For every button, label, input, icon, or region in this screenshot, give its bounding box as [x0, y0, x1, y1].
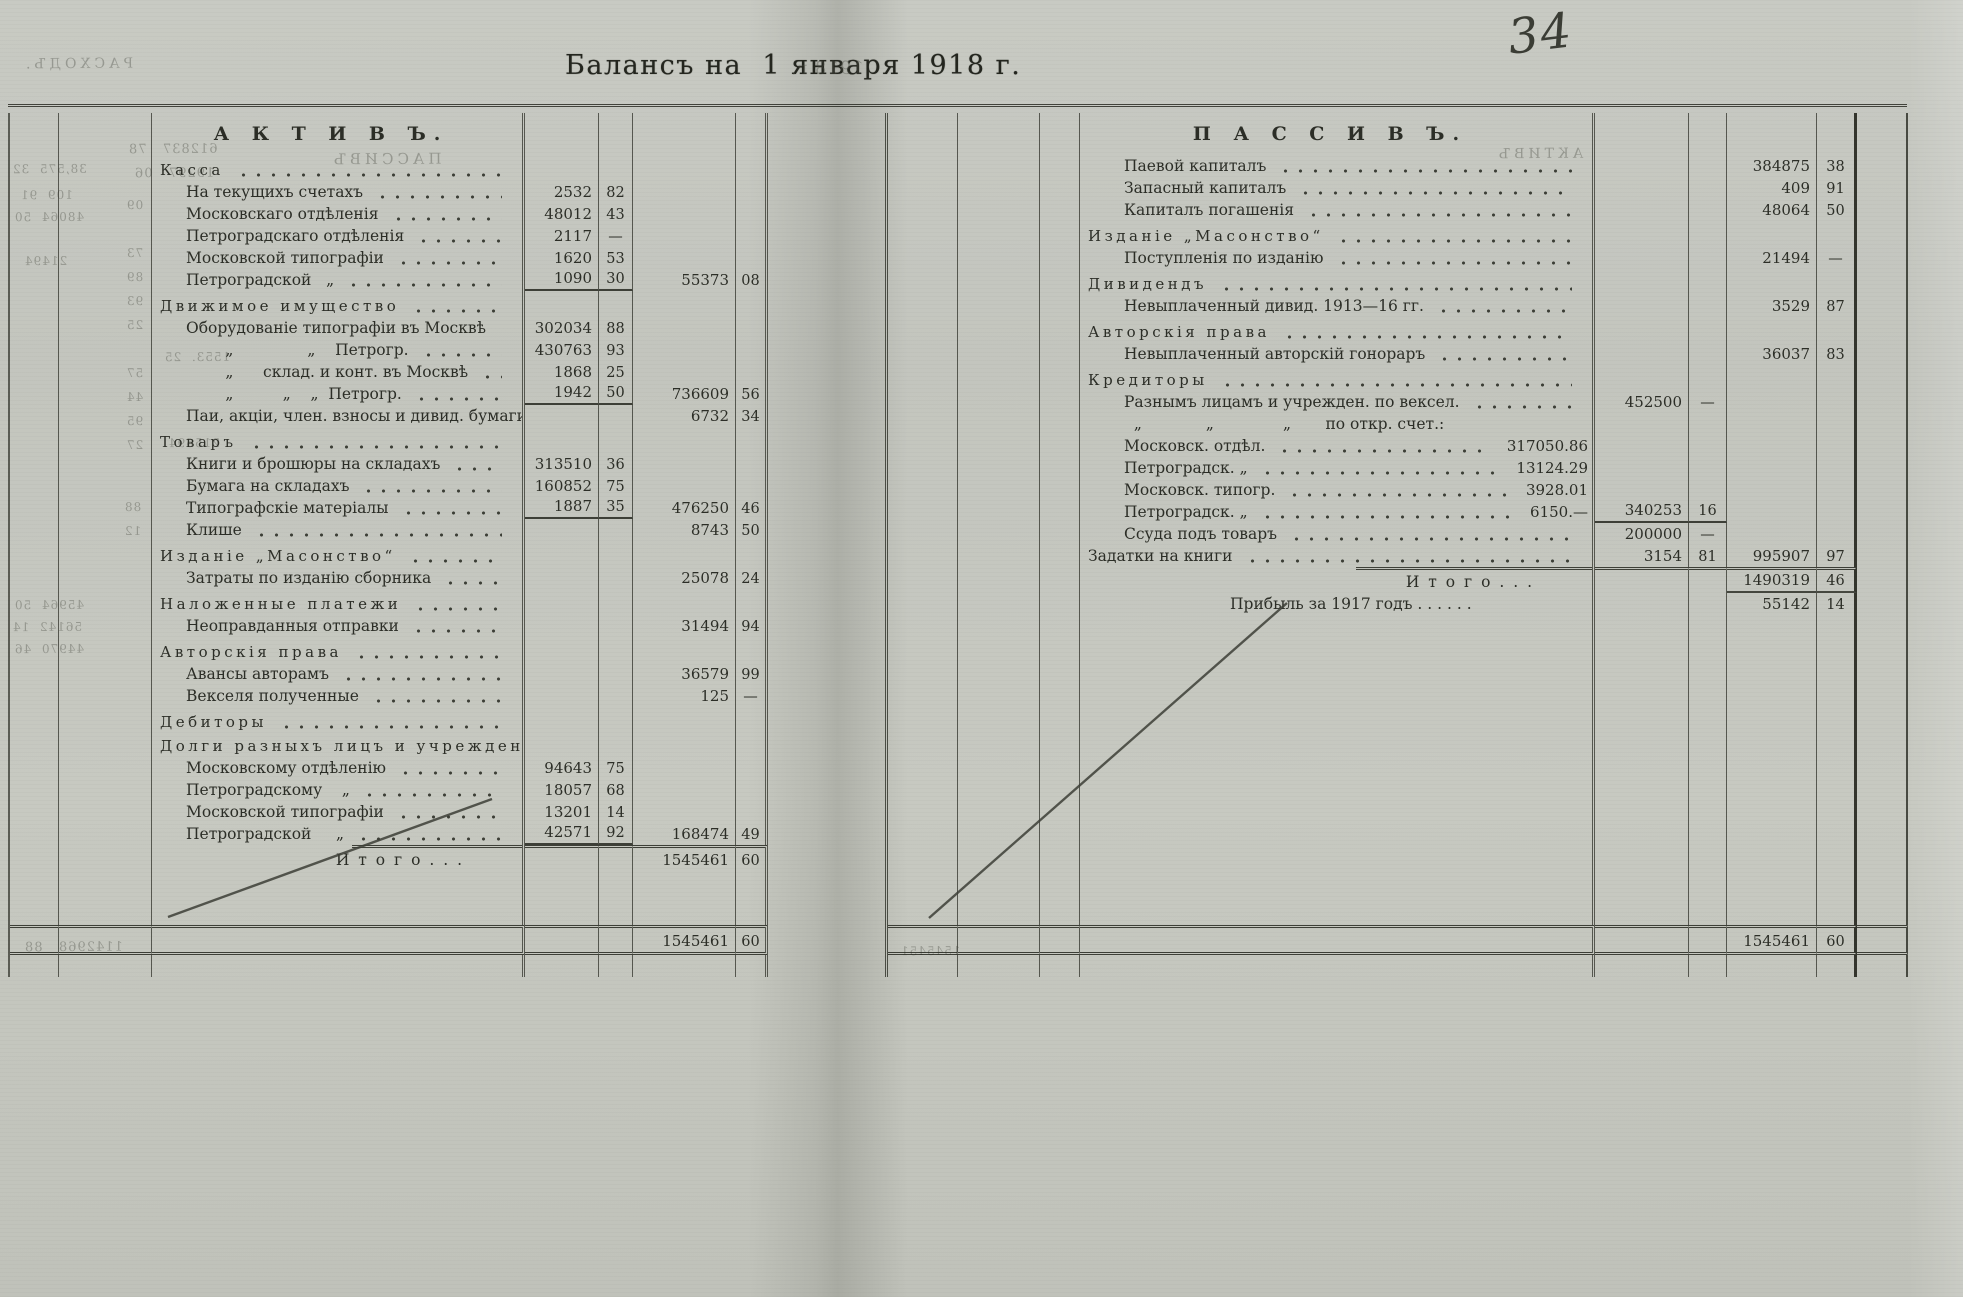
amount-col1: [1595, 269, 1689, 295]
margin-column: [10, 955, 59, 977]
amount-col2: [633, 453, 736, 475]
amount-col1: 2117: [525, 225, 599, 247]
margin-column: [10, 801, 59, 823]
ledger-row: Долги разныхъ лицъ и учрежденій:: [10, 733, 768, 757]
tail-column: [1857, 199, 1908, 221]
margin-column: [10, 203, 59, 225]
kopecks-col1: [1689, 155, 1727, 177]
amount-col2: [1727, 479, 1817, 501]
inline-amount: 317050.86: [1499, 437, 1592, 457]
kopecks-col2: [736, 589, 768, 615]
amount-col1: 2532: [525, 181, 599, 203]
kopecks-col1: 35: [599, 497, 633, 519]
dot-leader: [411, 307, 502, 313]
margin-column: [888, 365, 958, 391]
kopecks-col1: [599, 291, 633, 317]
tail-column: [1857, 365, 1908, 391]
amount-col1: [525, 519, 599, 541]
kopecks-col1: [599, 925, 633, 955]
row-label: Ссуда подъ товаръ: [1124, 525, 1277, 545]
kopecks-col1: [1689, 413, 1727, 435]
amount-col1: [525, 663, 599, 685]
dot-leader: [1298, 189, 1572, 195]
row-label: Петроградск. „: [1124, 459, 1248, 479]
margin-column: [10, 589, 59, 615]
amount-col1: 313510: [525, 453, 599, 475]
margin-column: [10, 733, 59, 757]
margin-column: [10, 871, 59, 925]
empty-column: [958, 391, 1040, 413]
kopecks-col2: [736, 541, 768, 567]
row-label-cell: Изданіе „Масонство“: [152, 541, 525, 567]
amount-col1: 48012: [525, 203, 599, 225]
row-label: Касса: [160, 161, 224, 181]
ledger-row: Московской типографіи 13201 14: [10, 801, 768, 823]
ledger-row: Задатки на книги 3154 81 995907 97: [888, 545, 1908, 567]
kopecks-col1: [599, 707, 633, 733]
amount-col1: 94643: [525, 757, 599, 779]
ghost-number-column: [59, 453, 152, 475]
amount-col1: [1595, 413, 1689, 435]
row-label-cell: Книги и брошюры на складахъ: [152, 453, 525, 475]
tail-column: [1857, 567, 1908, 593]
ghost-number-column: [59, 405, 152, 427]
kopecks-col2: —: [1817, 247, 1857, 269]
amount-col1: 1868: [525, 361, 599, 383]
tail-column: [1857, 155, 1908, 177]
kopecks-col1: [599, 955, 633, 977]
dot-leader: [396, 813, 502, 819]
ledger-row: Неоправданныя отправки 31494 94: [10, 615, 768, 637]
amount-col1: [525, 567, 599, 589]
dot-leader: [254, 531, 502, 537]
row-label: Авторскія права: [160, 643, 342, 663]
row-label-cell: Авторскія права: [1080, 317, 1595, 343]
row-label: Товаръ: [160, 433, 237, 453]
row-label-cell: Петроградской „: [152, 269, 525, 291]
row-label: „ „ „ по откр. счет.:: [1124, 415, 1444, 435]
empty-column: [958, 221, 1040, 247]
kopecks-col2: [736, 757, 768, 779]
kopecks-col1: [1689, 435, 1727, 457]
empty-column-narrow: [1040, 435, 1080, 457]
row-label: Задатки на книги: [1088, 547, 1233, 567]
empty-column: [958, 615, 1040, 925]
tail-column: [1857, 221, 1908, 247]
ledger-row: П А С С И В Ъ.: [888, 113, 1908, 155]
row-label-cell: Московской типографіи: [152, 801, 525, 823]
row-label: Разнымъ лицамъ и учрежден. по вексел.: [1124, 393, 1460, 413]
inline-amount: 3928.01: [1518, 481, 1592, 501]
amount-col1: [1595, 567, 1689, 593]
amount-col2: [1727, 501, 1817, 523]
dot-leader: [443, 579, 502, 585]
margin-column: [888, 435, 958, 457]
empty-column: [958, 955, 1040, 977]
ledger-row: Затраты по изданію сборника 25078 24: [10, 567, 768, 589]
margin-column: [10, 383, 59, 405]
paper-edge: [1908, 0, 1963, 1297]
kopecks-col2: [1817, 501, 1857, 523]
ledger-row: Московск. отдѣл. 317050.86: [888, 435, 1908, 457]
row-label-cell: Изданіе „Масонство“: [1080, 221, 1595, 247]
ledger-row: Авторскія права: [10, 637, 768, 663]
kopecks-col2: [1817, 955, 1857, 977]
amount-col1: [1595, 615, 1689, 925]
dot-leader: [416, 237, 502, 243]
amount-col1: [525, 733, 599, 757]
kopecks-col2: [736, 475, 768, 497]
kopecks-col2: [736, 453, 768, 475]
tail-column: [1857, 457, 1908, 479]
amount-col2: [633, 339, 736, 361]
amount-col2: [633, 225, 736, 247]
empty-column: [958, 247, 1040, 269]
kopecks-col1: —: [599, 225, 633, 247]
row-label-cell: [152, 871, 525, 925]
dot-leader: [375, 193, 502, 199]
ghost-number-column: [59, 823, 152, 845]
empty-column-narrow: [1040, 199, 1080, 221]
ledger-row: Прибыль за 1917 годъ . . . . . . 55142 1…: [888, 593, 1908, 615]
amount-col1: 1887: [525, 497, 599, 519]
row-label: Авансы авторамъ: [186, 665, 329, 685]
inline-amount: [464, 869, 476, 871]
row-label: „ склад. и конт. въ Москвѣ: [186, 363, 468, 383]
ghost-number-column: [59, 779, 152, 801]
ledger-row: И т о г о . . . 1545461 60: [10, 845, 768, 871]
kopecks-col1: 81: [1689, 545, 1727, 567]
row-label: Оборудованіе типографіи въ Москвѣ: [186, 319, 486, 339]
dot-leader: [249, 443, 502, 449]
row-label-cell: Московской типографіи: [152, 247, 525, 269]
kopecks-col2: [1817, 221, 1857, 247]
kopecks-col2: [736, 801, 768, 823]
row-label: Капиталъ погашенія: [1124, 201, 1294, 221]
kopecks-col1: [1689, 593, 1727, 615]
kopecks-col1: [1689, 365, 1727, 391]
row-label: „ „ „ Петрогр.: [186, 385, 402, 405]
ledger-row: Дебиторы: [10, 707, 768, 733]
ghost-number-column: [59, 955, 152, 977]
empty-column: [958, 177, 1040, 199]
amount-col1: [525, 541, 599, 567]
amount-col1: [1595, 457, 1689, 479]
row-label-cell: И т о г о . . .: [1080, 567, 1595, 593]
row-label: П А С С И В Ъ.: [1080, 123, 1580, 145]
empty-column-narrow: [1040, 113, 1080, 155]
kopecks-col1: [599, 845, 633, 871]
margin-column: [888, 479, 958, 501]
row-label-cell: Задатки на книги: [1080, 545, 1595, 567]
kopecks-col2: [1817, 391, 1857, 413]
ledger-row: Наложенные платежи: [10, 589, 768, 615]
row-label-cell: Запасный капиталъ: [1080, 177, 1595, 199]
margin-column: [10, 247, 59, 269]
kopecks-col2: 50: [736, 519, 768, 541]
kopecks-col1: [1689, 925, 1727, 955]
margin-column: [888, 501, 958, 523]
ledger-row: Ссуда подъ товаръ 200000 —: [888, 523, 1908, 545]
kopecks-col1: [1689, 457, 1727, 479]
row-label-cell: Клише: [152, 519, 525, 541]
row-label-cell: Прибыль за 1917 годъ . . . . . .: [1080, 593, 1595, 615]
amount-col1: [525, 685, 599, 707]
empty-column: [958, 545, 1040, 567]
amount-col2: 168474: [633, 823, 736, 845]
amount-col1: [525, 955, 599, 977]
empty-column-narrow: [1040, 155, 1080, 177]
amount-col2: [633, 427, 736, 453]
ledger-row: Петроградскаго отдѣленія 2117 —: [10, 225, 768, 247]
ledger-row: Изданіе „Масонство“: [888, 221, 1908, 247]
empty-column: [958, 435, 1040, 457]
kopecks-col2: [1817, 615, 1857, 925]
ghost-number-column: [59, 589, 152, 615]
ghost-number-column: [59, 113, 152, 155]
dot-leader: [480, 373, 502, 379]
kopecks-col1: [1689, 269, 1727, 295]
empty-column: [958, 523, 1040, 545]
empty-column: [958, 295, 1040, 317]
amount-col1: 200000: [1595, 523, 1689, 545]
margin-column: [10, 181, 59, 203]
ledger-row: Паи, акціи, член. взносы и дивид. бумаги…: [10, 405, 768, 427]
ghost-number-column: [59, 801, 152, 823]
kopecks-col2: [1817, 435, 1857, 457]
row-label-cell: Кредиторы: [1080, 365, 1595, 391]
row-label-cell: Наложенные платежи: [152, 589, 525, 615]
empty-column: [958, 501, 1040, 523]
dot-leader: [1260, 469, 1501, 475]
kopecks-col1: [1689, 317, 1727, 343]
kopecks-col2: [1817, 317, 1857, 343]
ledger-row: Дивидендъ: [888, 269, 1908, 295]
kopecks-col2: 46: [736, 497, 768, 519]
margin-column: [888, 343, 958, 365]
row-label-cell: Московскаго отдѣленія: [152, 203, 525, 225]
ledger-row: Московскому отдѣленію 94643 75: [10, 757, 768, 779]
ledger-row: Бумага на складахъ 160852 75: [10, 475, 768, 497]
margin-column: [10, 291, 59, 317]
amount-col1: [1595, 113, 1689, 155]
row-label: Невыплаченный дивид. 1913—16 гг.: [1124, 297, 1424, 317]
ledger-row: А К Т И В Ъ.: [10, 113, 768, 155]
amount-col2: [633, 541, 736, 567]
amount-col2: [633, 637, 736, 663]
empty-column-narrow: [1040, 479, 1080, 501]
empty-column: [958, 457, 1040, 479]
table-top-rule: [8, 104, 1907, 107]
row-label-cell: Московскому отдѣленію: [152, 757, 525, 779]
dot-leader: [452, 465, 502, 471]
kopecks-col2: 99: [736, 663, 768, 685]
ledger-row: И т о г о . . . 1490319 46: [888, 567, 1908, 593]
empty-column: [958, 925, 1040, 955]
empty-column-narrow: [1040, 955, 1080, 977]
amount-col2: [633, 757, 736, 779]
amount-col1: [525, 291, 599, 317]
kopecks-col2: [736, 181, 768, 203]
amount-col2: 1545461: [1727, 925, 1817, 955]
ghost-number-column: [59, 203, 152, 225]
kopecks-col2: [736, 871, 768, 925]
empty-column-narrow: [1040, 457, 1080, 479]
assets-page: А К Т И В Ъ. Касса: [8, 113, 768, 977]
amount-col2: 1545461: [633, 845, 736, 871]
kopecks-col2: 50: [1817, 199, 1857, 221]
row-label: Кредиторы: [1088, 371, 1208, 391]
amount-col1: 13201: [525, 801, 599, 823]
amount-col2: 8743: [633, 519, 736, 541]
amount-col2: [1727, 413, 1817, 435]
amount-col2: 55142: [1727, 593, 1817, 615]
row-label: И т о г о . . .: [1406, 573, 1534, 593]
margin-column: [888, 615, 958, 925]
empty-column-narrow: [1040, 501, 1080, 523]
dot-leader: [236, 171, 502, 177]
row-label-cell: Ссуда подъ товаръ: [1080, 523, 1595, 545]
margin-column: [10, 155, 59, 181]
empty-column-narrow: [1040, 925, 1080, 955]
amount-col2: [633, 733, 736, 757]
kopecks-col1: [1689, 113, 1727, 155]
row-label-cell: Дивидендъ: [1080, 269, 1595, 295]
ghost-number-column: [59, 637, 152, 663]
row-label: Векселя полученные: [186, 687, 359, 707]
margin-column: [888, 269, 958, 295]
row-label-cell: Петроградскому „: [152, 779, 525, 801]
kopecks-col1: [1689, 343, 1727, 365]
amount-col2: 48064: [1727, 199, 1817, 221]
row-label: Дивидендъ: [1088, 275, 1207, 295]
tail-column: [1857, 545, 1908, 567]
kopecks-col2: [736, 427, 768, 453]
amount-col2: 476250: [633, 497, 736, 519]
kopecks-col1: —: [1689, 523, 1727, 545]
ghost-number-column: [59, 291, 152, 317]
dot-leader: [1289, 535, 1572, 541]
empty-column: [958, 567, 1040, 593]
amount-col2: 6732: [633, 405, 736, 427]
dot-leader: [396, 259, 502, 265]
margin-column: [10, 757, 59, 779]
row-label: Московск. типогр.: [1124, 481, 1275, 501]
amount-col2: [1727, 615, 1817, 925]
amount-col2: [633, 361, 736, 383]
kopecks-col2: [1817, 413, 1857, 435]
margin-column: [10, 113, 59, 155]
kopecks-col2: 38: [1817, 155, 1857, 177]
inline-amount: [186, 950, 198, 952]
kopecks-col1: 68: [599, 779, 633, 801]
amount-col2: 21494: [1727, 247, 1817, 269]
ghost-number-column: [59, 247, 152, 269]
row-label: Изданіе „Масонство“: [160, 547, 396, 567]
amount-col1: 452500: [1595, 391, 1689, 413]
dot-leader: [398, 769, 502, 775]
amount-col2: [1727, 523, 1817, 545]
amount-col2: [1727, 955, 1817, 977]
margin-column: [888, 247, 958, 269]
kopecks-col1: 88: [599, 317, 633, 339]
row-label: Петроградской „: [186, 271, 334, 291]
ledger-row: [888, 955, 1908, 977]
amount-col1: [1595, 925, 1689, 955]
amount-col2: [633, 113, 736, 155]
dot-leader: [1436, 307, 1572, 313]
tail-column: [1857, 343, 1908, 365]
margin-column: [888, 523, 958, 545]
ghost-number-column: [59, 475, 152, 497]
kopecks-col1: 50: [599, 383, 633, 405]
row-label-cell: [1080, 615, 1595, 925]
amount-col1: [525, 113, 599, 155]
dot-leader: [411, 627, 502, 633]
dot-leader: [1287, 491, 1510, 497]
amount-col2: 125: [633, 685, 736, 707]
amount-col1: [525, 845, 599, 871]
ledger-row: Петроградск. „ 6150.— 340253 16: [888, 501, 1908, 523]
kopecks-col1: [599, 405, 633, 427]
empty-column-narrow: [1040, 413, 1080, 435]
margin-column: [888, 177, 958, 199]
ledger-row: Петроградск. „ 13124.29: [888, 457, 1908, 479]
empty-column-narrow: [1040, 567, 1080, 593]
row-label: Паевой капиталъ: [1124, 157, 1266, 177]
empty-column: [958, 593, 1040, 615]
kopecks-col1: 75: [599, 757, 633, 779]
amount-col1: 160852: [525, 475, 599, 497]
dot-leader: [1245, 557, 1572, 563]
amount-col1: [1595, 317, 1689, 343]
row-label-cell: Поступленія по изданію: [1080, 247, 1595, 269]
kopecks-col2: [736, 317, 768, 339]
dot-leader: [1219, 285, 1572, 291]
kopecks-col2: [1817, 113, 1857, 155]
kopecks-col1: 43: [599, 203, 633, 225]
row-label-cell: Разнымъ лицамъ и учрежден. по вексел.: [1080, 391, 1595, 413]
ledger-row: Поступленія по изданію 21494 —: [888, 247, 1908, 269]
empty-column: [958, 155, 1040, 177]
ghost-number-column: [59, 361, 152, 383]
amount-col1: [525, 405, 599, 427]
amount-col2: 55373: [633, 269, 736, 291]
tail-column: [1857, 615, 1908, 925]
kopecks-col2: [736, 779, 768, 801]
amount-col1: 1942: [525, 383, 599, 405]
row-label: Дебиторы: [160, 713, 267, 733]
ledger-row: „ „ „ Петрогр. 1942 50 736609 56: [10, 383, 768, 405]
ghost-number-column: [59, 707, 152, 733]
row-label: Петроградскаго отдѣленія: [186, 227, 404, 247]
ghost-number-column: [59, 317, 152, 339]
dot-leader: [362, 791, 502, 797]
amount-col1: 42571: [525, 823, 599, 845]
kopecks-col1: [1689, 199, 1727, 221]
margin-column: [888, 199, 958, 221]
row-label-cell: Векселя полученные: [152, 685, 525, 707]
empty-column: [958, 269, 1040, 295]
dot-leader: [341, 675, 502, 681]
margin-column: [888, 593, 958, 615]
row-label: Бумага на складахъ: [186, 477, 349, 497]
empty-column-narrow: [1040, 545, 1080, 567]
liabilities-page: П А С С И В Ъ. Паевой капиталъ: [885, 113, 1908, 977]
kopecks-col2: 60: [736, 925, 768, 955]
margin-column: [888, 155, 958, 177]
amount-col2: [633, 247, 736, 269]
